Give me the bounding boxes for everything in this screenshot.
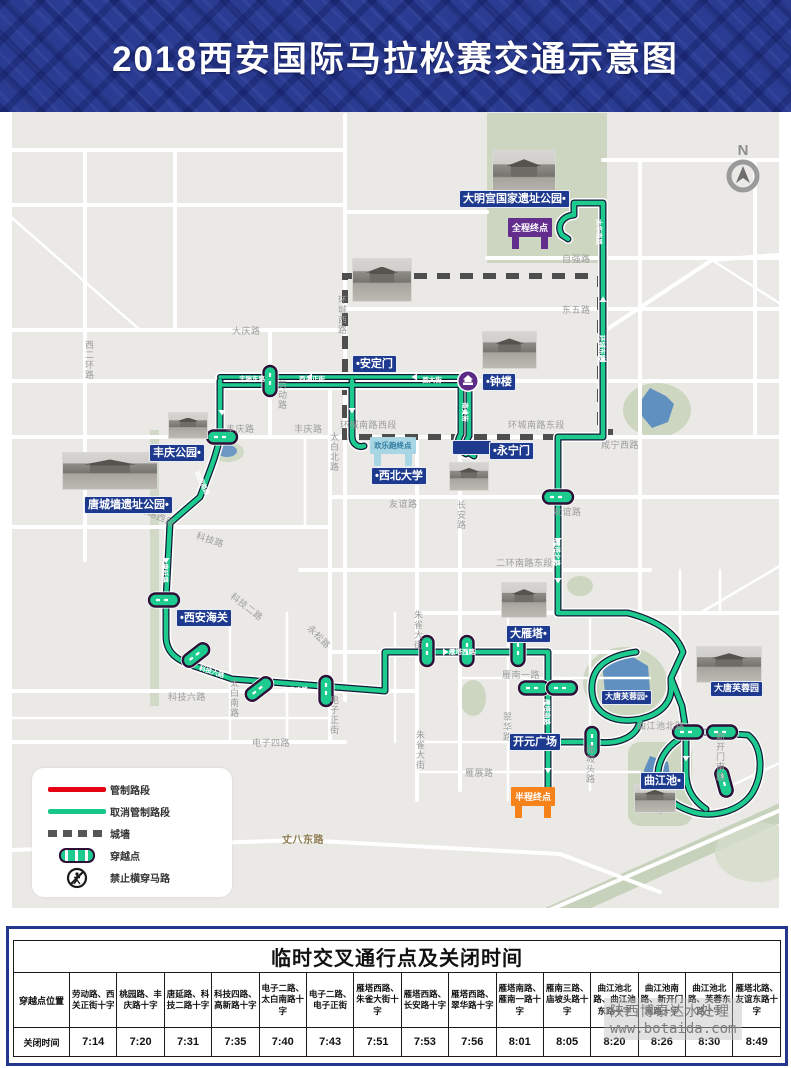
crossing-point-pill xyxy=(541,489,575,506)
photo-dayanta xyxy=(501,582,547,618)
road-label: 庙坡头路 xyxy=(584,744,597,784)
crossing-location-cell: 唐延路、科技二路十字 xyxy=(164,973,211,1028)
road-label: 大庆路 xyxy=(232,324,261,337)
road-label: 环城南路东段 xyxy=(508,418,565,431)
closing-time-cell: 8:01 xyxy=(496,1028,543,1057)
road-label: 自强路 xyxy=(562,252,591,265)
crossing-location-cell: 科技四路、高新路十字 xyxy=(212,973,259,1028)
watermark-url: www.botaida.com xyxy=(610,1021,736,1037)
crossing-location-cell: 雁塔西路、长安路十字 xyxy=(401,973,448,1028)
road-label: 朱雀大街 xyxy=(414,730,427,770)
route-road-label: 雁塔北路 xyxy=(553,540,563,566)
fun-run-finish-label: 欢乐跑终点 xyxy=(370,437,416,454)
map-label-dayanta: 大雁塔• xyxy=(506,625,551,643)
closing-time-cell: 7:56 xyxy=(449,1028,496,1057)
map-label-qujiangchi: 曲江池• xyxy=(640,772,685,790)
crossing-location-cell: 雁塔南路、雁南一路十字 xyxy=(496,973,543,1028)
road-label: 环城南路西段 xyxy=(340,418,397,431)
road-label: 太白南路 xyxy=(228,678,241,718)
closing-time-cell: 7:31 xyxy=(164,1028,211,1057)
road-label: 东五路 xyxy=(562,303,591,316)
schedule-table-frame: 临时交叉通行点及关闭时间 穿越点位置 劳动路、西关正街十字桃园路、丰庆路十字唐延… xyxy=(6,926,788,1066)
crossing-point-pill xyxy=(545,680,579,697)
route-road-label: 西关正街 xyxy=(299,373,325,383)
crossing-location-cell: 电子二路、太白南路十字 xyxy=(259,973,306,1028)
watermark-name: 陕西博泰达水处理 xyxy=(610,1001,736,1021)
header-banner: 2018西安国际马拉松赛交通示意图 xyxy=(0,0,791,112)
map-area: 全程终点 半程终点 欢乐跑终点 大明宫国家遗址公园••安定门•钟楼•永宁门丰庆公… xyxy=(12,112,779,908)
route-road-label: 电子二路 xyxy=(282,684,308,694)
closing-time-cell: 7:43 xyxy=(306,1028,353,1057)
legend-panel: 管制路段 取消管制路段 城墙 穿越点 xyxy=(32,768,232,897)
crossing-point-pill xyxy=(147,592,181,609)
road-label: 咸宁西路 xyxy=(601,438,639,451)
route-road-label: 雁塔西路 xyxy=(449,646,475,656)
closing-time-cell: 7:53 xyxy=(401,1028,448,1057)
road-label: 劳动路 xyxy=(276,380,289,410)
road-label: 雁南一路 xyxy=(502,668,540,681)
closing-time-cell: 7:14 xyxy=(70,1028,117,1057)
crossing-location-cell: 劳动路、西关正街十字 xyxy=(70,973,117,1028)
map-label-haiguan: •西安海关 xyxy=(176,609,232,627)
map-label-zhonglou: •钟楼 xyxy=(482,373,516,391)
uncontrolled-road-swatch xyxy=(44,809,110,814)
legend-item-uncontrolled: 取消管制路段 xyxy=(44,801,220,822)
route-road-label: 西大街 xyxy=(422,374,442,384)
map-inner: 全程终点 半程终点 欢乐跑终点 大明宫国家遗址公园••安定门•钟楼•永宁门丰庆公… xyxy=(12,112,779,908)
route-road-label: 太华南路 xyxy=(595,219,605,245)
page-title: 2018西安国际马拉松赛交通示意图 xyxy=(112,31,679,82)
road-label: 丰庆路 xyxy=(226,422,255,435)
photo-fengqing xyxy=(168,412,208,439)
closing-time-cell: 8:05 xyxy=(543,1028,590,1057)
road-label: 电子正街 xyxy=(328,695,341,735)
legend-label: 城墙 xyxy=(110,826,130,841)
row-label-time: 关闭时间 xyxy=(14,1028,70,1057)
road-label: 丈八东路 xyxy=(282,831,324,846)
road-label: 丰庆路 xyxy=(294,422,323,435)
photo-datangfurong xyxy=(696,646,762,683)
road-label: 新开门南路 xyxy=(714,732,727,782)
legend-item-controlled: 管制路段 xyxy=(44,779,220,800)
legend-item-nojaywalk: 禁止横穿马路 xyxy=(44,867,220,888)
citywall-swatch xyxy=(44,830,110,837)
closing-time-cell: 7:40 xyxy=(259,1028,306,1057)
photo-andingmen xyxy=(352,258,412,302)
road-label: 环城西路 xyxy=(336,295,349,335)
crossing-location-cell: 雁塔西路、朱雀大街十字 xyxy=(354,973,401,1028)
half-finish-label: 半程终点 xyxy=(511,787,555,806)
crossing-location-cell: 电子二路、电子正街 xyxy=(306,973,353,1028)
route-road-label: 环城东路 xyxy=(598,335,608,361)
road-label: 电子四路 xyxy=(252,736,290,749)
obscured-label xyxy=(452,440,492,455)
closing-time-cell: 7:20 xyxy=(117,1028,164,1057)
map-label-andingmen: •安定门 xyxy=(352,355,397,373)
legend-label: 管制路段 xyxy=(110,782,150,797)
photo-zhonglou xyxy=(482,331,537,369)
crossing-location-cell: 雁塔西路、翠华路十字 xyxy=(449,973,496,1028)
map-label-fengqing: 丰庆公园• xyxy=(149,444,205,462)
road-label: 朱雀大街 xyxy=(412,610,425,650)
legend-label: 取消管制路段 xyxy=(110,804,170,819)
closing-time-cell: 7:51 xyxy=(354,1028,401,1057)
map-label-yongningmen: •永宁门 xyxy=(489,442,534,460)
full-finish-gate: 全程终点 xyxy=(508,218,552,249)
road-label: 科技六路 xyxy=(168,690,206,703)
route-road-label: 南大街 xyxy=(461,402,471,422)
poster: 2018西安国际马拉松赛交通示意图 xyxy=(0,0,791,1068)
watermark: 陕西博泰达水处理 www.botaida.com xyxy=(604,998,742,1040)
route-road-label: 丰镐东路 xyxy=(239,373,265,383)
legend-item-citywall: 城墙 xyxy=(44,823,220,844)
north-letter: N xyxy=(723,142,763,159)
bell-tower-icon xyxy=(457,370,479,392)
road-label: 友谊路 xyxy=(389,497,418,510)
half-finish-gate: 半程终点 xyxy=(511,787,555,818)
map-label-datangfurong: 大唐芙蓉园 xyxy=(710,681,763,697)
no-jaywalk-icon xyxy=(44,867,110,889)
map-label-xibeidaxue: •西北大学 xyxy=(371,467,427,485)
map-label-kaiyuan: 开元广场 xyxy=(509,733,561,751)
closing-time-cell: 7:35 xyxy=(212,1028,259,1057)
photo-yongningmen xyxy=(449,462,489,491)
road-label: 长安路 xyxy=(455,500,468,530)
legend-label: 禁止横穿马路 xyxy=(110,870,170,885)
route-road-label: 唐延路 xyxy=(161,563,171,583)
road-label: 雁展路 xyxy=(465,766,494,779)
legend-label: 穿越点 xyxy=(110,848,140,863)
compass-icon xyxy=(726,159,760,193)
north-indicator: N xyxy=(723,142,763,198)
road-label: 太白北路 xyxy=(328,432,341,472)
table-title: 临时交叉通行点及关闭时间 xyxy=(14,941,781,973)
fun-run-finish-gate: 欢乐跑终点 xyxy=(370,437,416,466)
controlled-road-swatch xyxy=(44,787,110,792)
road-label: 二环南路东段 xyxy=(496,556,553,569)
route-road-label: 雁塔南路 xyxy=(543,699,553,725)
photo-tangcheng xyxy=(62,452,158,490)
map-label-datangfurong-small: 大唐芙蓉园• xyxy=(601,690,652,705)
map-label-tangcheng: 唐城墙遗址公园• xyxy=(84,496,173,514)
road-label: 曲江池北路 xyxy=(637,719,685,732)
road-label: 西二环路 xyxy=(83,340,96,380)
row-label-location: 穿越点位置 xyxy=(14,973,70,1028)
road-label: 友谊路 xyxy=(553,505,582,518)
crossing-location-cell: 桃园路、丰庆路十字 xyxy=(117,973,164,1028)
full-finish-label: 全程终点 xyxy=(508,218,552,237)
crossing-point-icon xyxy=(44,848,110,863)
map-label-damingong: 大明宫国家遗址公园• xyxy=(459,190,570,208)
crossing-location-cell: 雁南三路、庙坡头路十字 xyxy=(543,973,590,1028)
legend-item-crossing: 穿越点 xyxy=(44,845,220,866)
